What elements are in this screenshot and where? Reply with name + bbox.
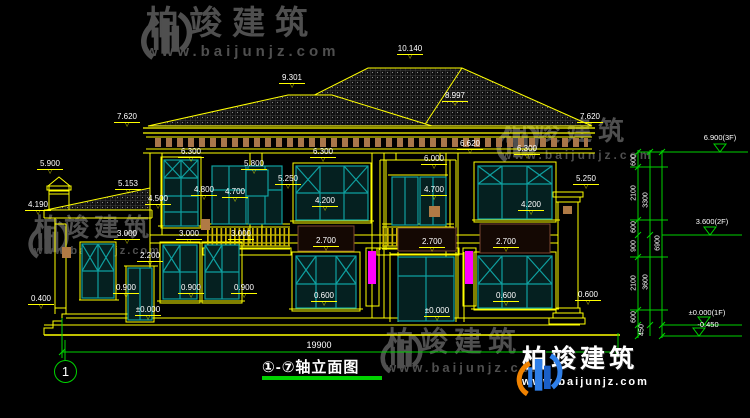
- window: [164, 160, 198, 226]
- window: [82, 244, 114, 298]
- door: [128, 268, 152, 320]
- door: [420, 177, 446, 225]
- window: [478, 166, 552, 219]
- window: [163, 245, 197, 299]
- overall-dimension: 19900: [306, 340, 331, 350]
- title-underline: [262, 376, 382, 380]
- axis-grid-bubble: 1: [54, 360, 77, 383]
- window: [478, 256, 552, 308]
- drawing-title: ①-⑦轴立面图: [262, 356, 359, 377]
- spandrel-panels: [298, 224, 550, 253]
- window: [296, 166, 368, 220]
- entrance-door: [398, 257, 454, 321]
- window: [296, 256, 356, 308]
- axis-grid-number: 1: [62, 364, 69, 379]
- window: [246, 170, 268, 196]
- door: [392, 177, 418, 225]
- brand-logo-color: 柏竣建筑 www.baijunjz.com: [514, 347, 649, 388]
- door: [212, 166, 246, 224]
- cad-elevation-canvas: 柏竣建筑 www.baijunjz.com 柏竣建筑 www.baijunjz.…: [0, 0, 750, 418]
- window: [205, 245, 239, 299]
